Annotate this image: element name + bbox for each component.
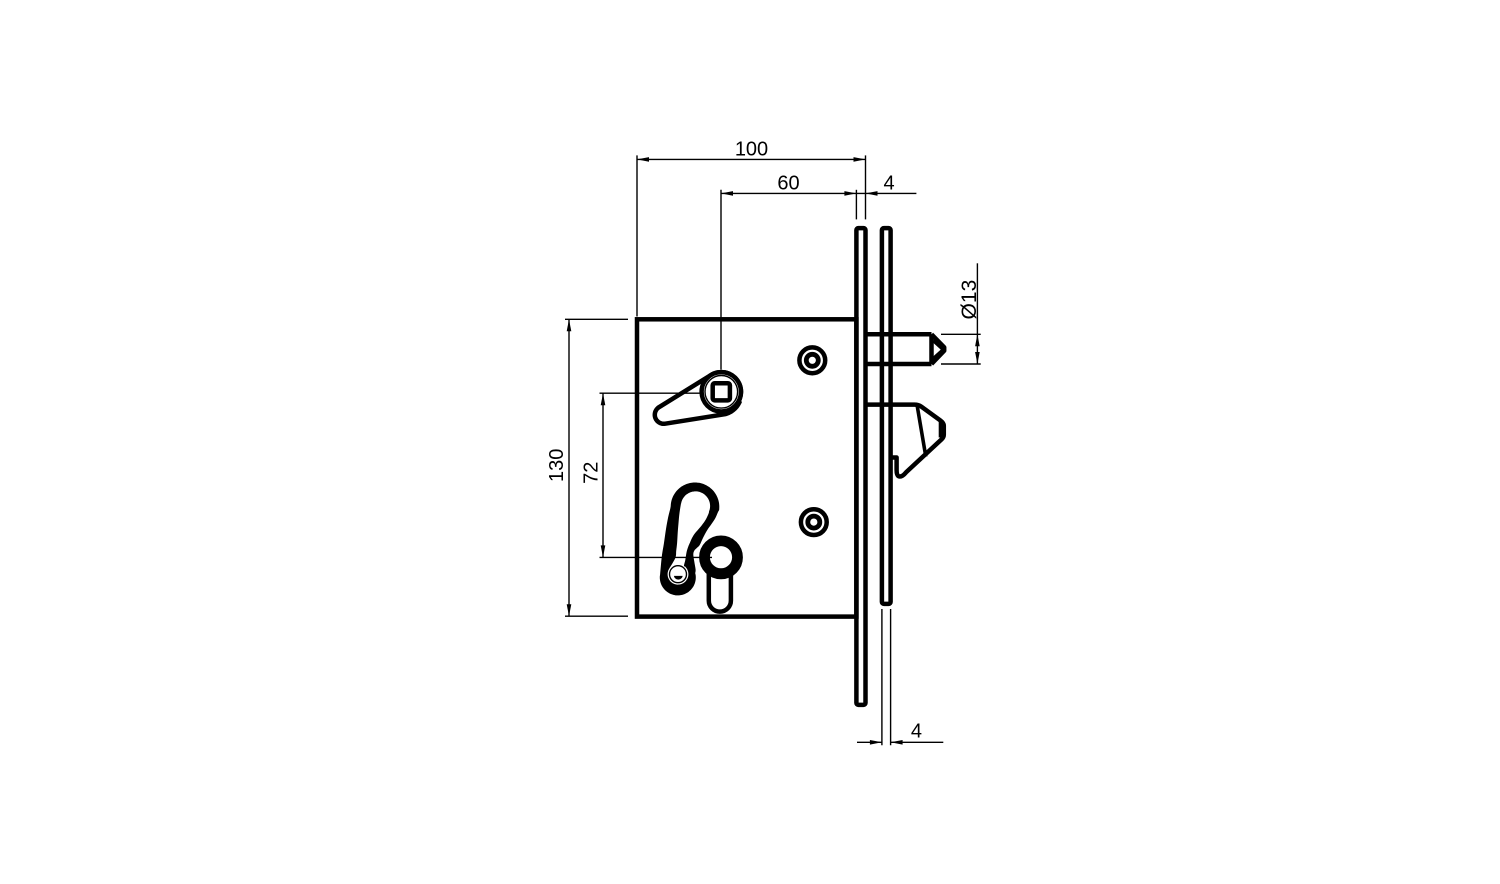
svg-text:Ø13: Ø13: [958, 280, 981, 320]
svg-text:130: 130: [546, 449, 568, 482]
svg-text:60: 60: [777, 172, 799, 194]
svg-text:4: 4: [883, 172, 894, 194]
svg-text:4: 4: [911, 720, 922, 742]
svg-text:72: 72: [581, 462, 603, 484]
svg-text:100: 100: [735, 138, 768, 160]
